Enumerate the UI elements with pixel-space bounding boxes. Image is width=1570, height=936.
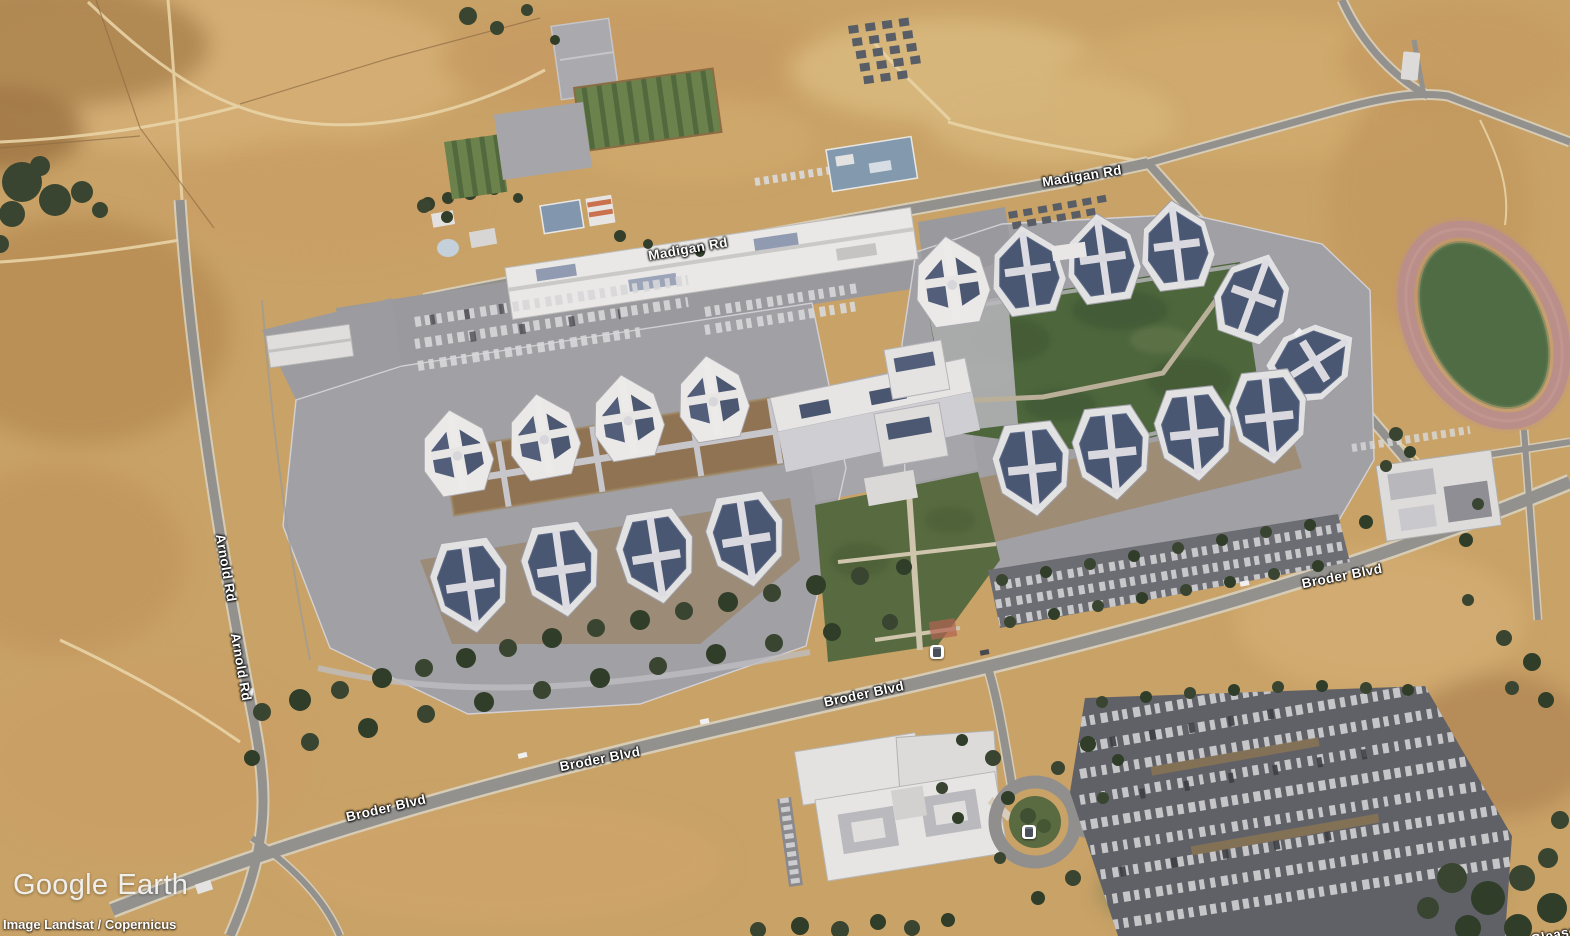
logo-word-google: Google xyxy=(13,869,108,901)
logo-word-earth: Earth xyxy=(117,869,188,901)
bus-glyph xyxy=(933,647,941,657)
satellite-imagery xyxy=(0,0,1570,936)
map-viewport[interactable]: Arnold Rd Arnold Rd Broder Blvd Broder B… xyxy=(0,0,1570,936)
transit-stop-icon[interactable] xyxy=(1022,825,1036,839)
imagery-attribution: Image Landsat / Copernicus xyxy=(3,917,176,932)
bus-glyph xyxy=(1025,827,1033,837)
google-earth-logo: GoogleEarth xyxy=(13,869,188,902)
transit-stop-icon[interactable] xyxy=(930,645,944,659)
